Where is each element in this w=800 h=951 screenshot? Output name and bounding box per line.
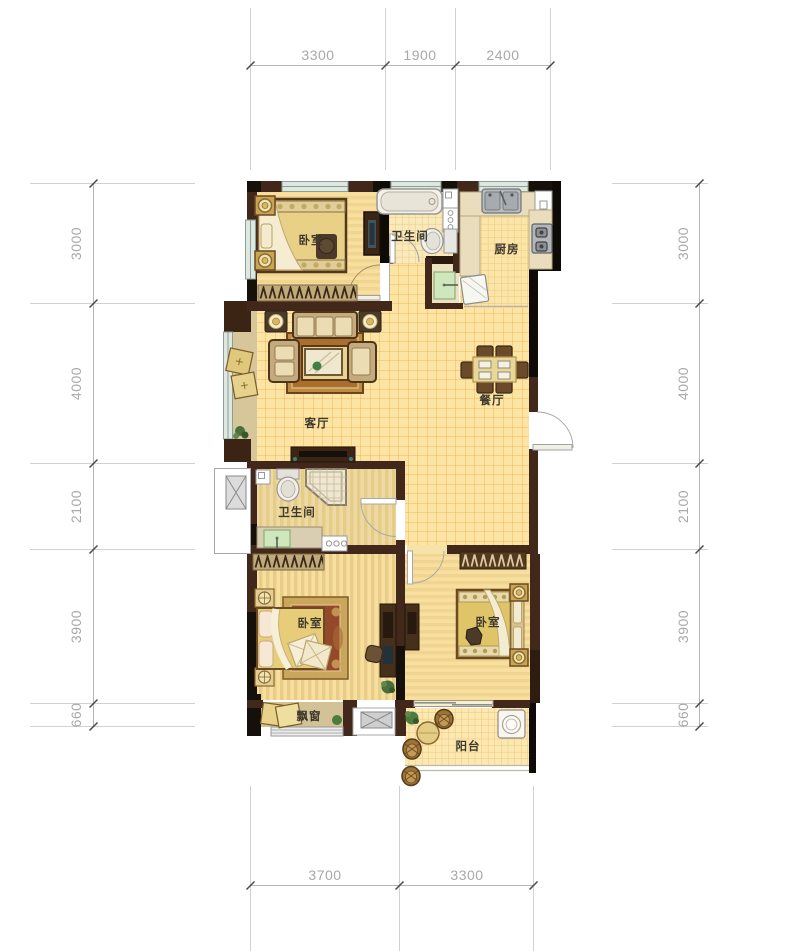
svg-text:阳台: 阳台	[456, 739, 481, 753]
svg-text:飘窗: 飘窗	[297, 709, 322, 723]
svg-text:卫生间: 卫生间	[391, 229, 429, 243]
svg-text:4000: 4000	[68, 367, 84, 400]
svg-text:3000: 3000	[675, 227, 691, 260]
svg-text:1900: 1900	[403, 47, 436, 63]
svg-text:卧室: 卧室	[476, 615, 501, 629]
svg-text:卧室: 卧室	[299, 233, 324, 247]
svg-text:餐厅: 餐厅	[479, 393, 505, 407]
svg-text:卧室: 卧室	[298, 616, 323, 630]
svg-text:3700: 3700	[308, 867, 341, 883]
svg-text:2100: 2100	[68, 490, 84, 523]
svg-text:3900: 3900	[675, 610, 691, 643]
svg-text:2400: 2400	[486, 47, 519, 63]
svg-text:660: 660	[675, 703, 691, 728]
svg-text:客厅: 客厅	[304, 416, 330, 430]
svg-text:厨房: 厨房	[495, 242, 520, 256]
svg-text:3000: 3000	[68, 227, 84, 260]
svg-text:3900: 3900	[68, 610, 84, 643]
svg-text:3300: 3300	[301, 47, 334, 63]
svg-text:2100: 2100	[675, 490, 691, 523]
svg-text:4000: 4000	[675, 367, 691, 400]
svg-text:3300: 3300	[450, 867, 483, 883]
svg-text:卫生间: 卫生间	[278, 505, 316, 519]
svg-text:660: 660	[68, 703, 84, 728]
